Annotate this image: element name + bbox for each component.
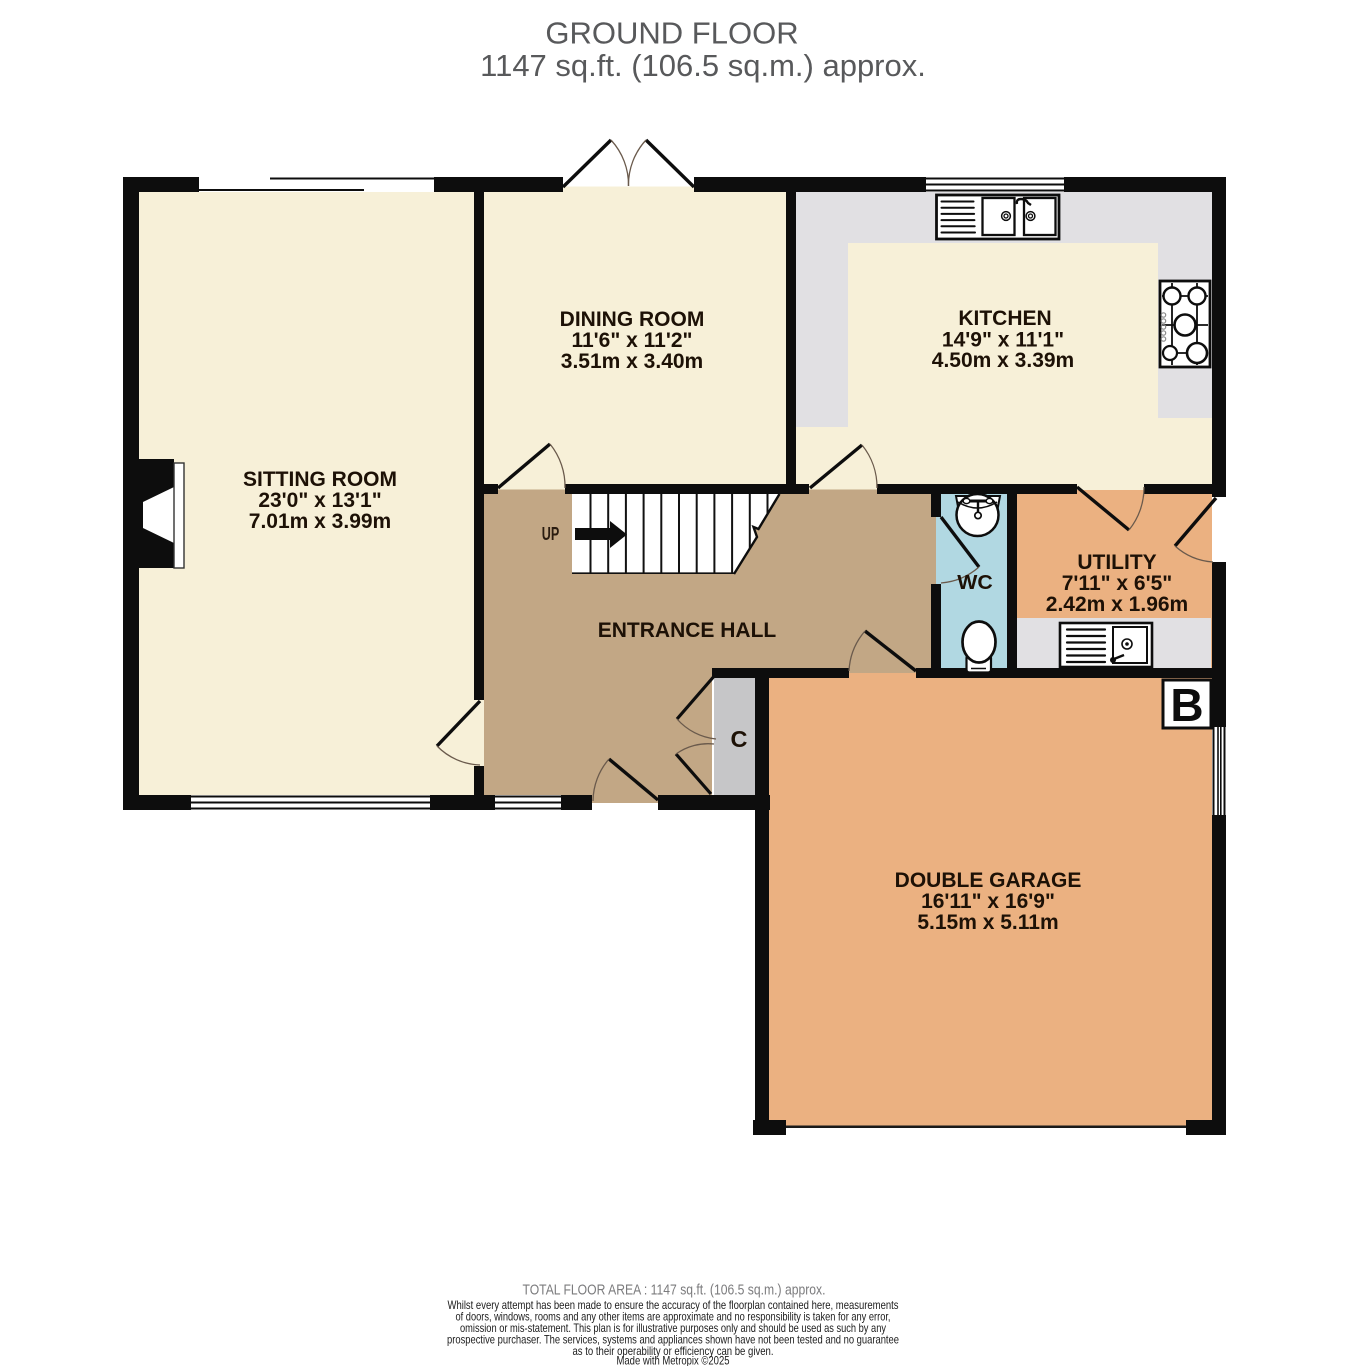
- svg-text:7.01m x 3.99m: 7.01m x 3.99m: [249, 510, 391, 533]
- svg-text:5.15m x 5.11m: 5.15m x 5.11m: [917, 911, 1058, 934]
- svg-text:SITTING ROOM: SITTING ROOM: [243, 468, 397, 491]
- svg-text:DOUBLE GARAGE: DOUBLE GARAGE: [895, 869, 1082, 892]
- svg-text:7'11" x 6'5": 7'11" x 6'5": [1062, 572, 1173, 595]
- svg-text:KITCHEN: KITCHEN: [958, 307, 1051, 330]
- svg-text:16'11" x 16'9": 16'11" x 16'9": [921, 890, 1055, 913]
- svg-text:ENTRANCE HALL: ENTRANCE HALL: [598, 619, 777, 642]
- svg-text:WC: WC: [957, 571, 993, 594]
- svg-text:TOTAL FLOOR AREA : 1147 sq.ft.: TOTAL FLOOR AREA : 1147 sq.ft. (106.5 sq…: [523, 1283, 826, 1299]
- svg-text:UP: UP: [542, 523, 560, 544]
- svg-text:B: B: [1170, 679, 1203, 731]
- svg-text:Made with Metropix ©2025: Made with Metropix ©2025: [617, 1354, 730, 1366]
- svg-text:23'0" x 13'1": 23'0" x 13'1": [258, 489, 381, 512]
- svg-text:UTILITY: UTILITY: [1077, 551, 1156, 574]
- svg-text:GROUND FLOOR: GROUND FLOOR: [545, 16, 798, 51]
- svg-text:2.42m x 1.96m: 2.42m x 1.96m: [1046, 593, 1188, 616]
- svg-text:3.51m x 3.40m: 3.51m x 3.40m: [561, 350, 703, 373]
- svg-text:1147 sq.ft. (106.5 sq.m.) appr: 1147 sq.ft. (106.5 sq.m.) approx.: [480, 48, 926, 83]
- svg-text:DINING ROOM: DINING ROOM: [560, 308, 705, 331]
- svg-text:4.50m x 3.39m: 4.50m x 3.39m: [932, 349, 1074, 372]
- svg-text:C: C: [731, 726, 748, 752]
- svg-text:11'6" x 11'2": 11'6" x 11'2": [571, 329, 692, 352]
